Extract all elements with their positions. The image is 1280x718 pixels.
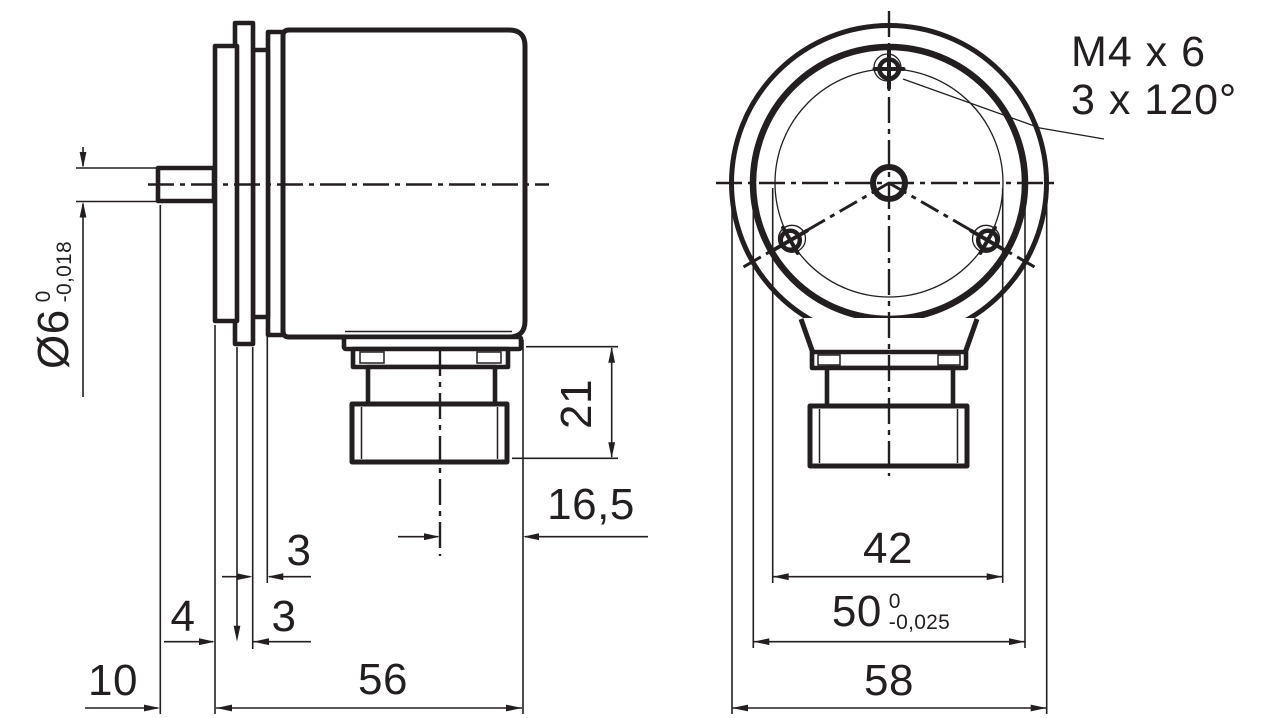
dim-body-length-label: 56 [358, 658, 408, 702]
dim-connector-offset-label: 16,5 [547, 483, 635, 527]
dim-body-diameter [732, 705, 1047, 712]
screw-note: M4 x 6 3 x 120° [1071, 28, 1237, 124]
connector-plate-notch-left [360, 352, 384, 363]
dim-shaft-length [85, 705, 160, 712]
shaft-dia-value: Ø6 [32, 309, 76, 369]
dim-flange-diameter-label: 50 0 -0,025 [832, 590, 950, 634]
connector-lower-block-side [352, 404, 507, 462]
dim-bolt-circle [773, 573, 1003, 580]
dim-shaft-diameter-label: Ø6 0 -0,018 [32, 241, 76, 369]
shaft-dia-tolerance: 0 -0,018 [33, 241, 76, 302]
dim-connector-height-label: 21 [555, 379, 599, 429]
connector-upper-block-side [368, 367, 495, 404]
side-view [148, 23, 549, 556]
flange-dia-value: 50 [832, 590, 882, 634]
dim-shaft-length-label: 10 [88, 659, 138, 703]
connector-plate-front-notch-left [818, 355, 840, 365]
screw-note-line2: 3 x 120° [1071, 76, 1237, 124]
flange-dia-tolerance: 0 -0,025 [889, 591, 950, 634]
screw-note-line1: M4 x 6 [1071, 28, 1237, 76]
connector-plate-notch-right [477, 352, 501, 363]
body-outline [283, 30, 525, 337]
dim-flange-thickness-label: 4 [171, 595, 196, 639]
dim-shaft-diameter [76, 147, 157, 397]
dim-body-length [216, 705, 522, 712]
dim-flange-diameter [753, 638, 1025, 645]
connector-plate-front-notch-right [938, 355, 960, 365]
technical-drawing-encoder: Ø6 0 -0,018 10 56 4 3 3 16,5 21 42 50 0 … [0, 0, 1280, 718]
dim-ring1-thickness-label: 3 [272, 595, 297, 639]
front-view [716, 11, 1104, 476]
dim-ring2-thickness-label: 3 [287, 529, 312, 573]
dim-body-diameter-label: 58 [864, 659, 914, 703]
dim-bolt-circle-label: 42 [863, 527, 913, 571]
